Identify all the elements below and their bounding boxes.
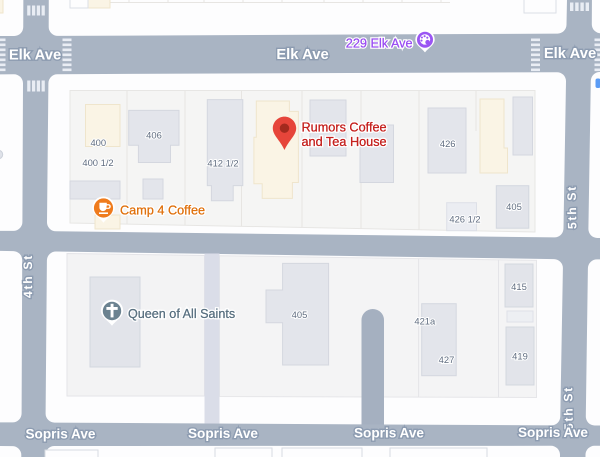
svg-text:Sopris Ave: Sopris Ave	[188, 426, 258, 441]
svg-text:400: 400	[90, 137, 106, 148]
svg-text:405: 405	[506, 201, 522, 212]
svg-text:Rumors Coffee: Rumors Coffee	[302, 121, 387, 135]
svg-text:5th St: 5th St	[561, 386, 576, 430]
svg-text:Sopris Ave: Sopris Ave	[518, 425, 588, 440]
svg-text:Sopris Ave: Sopris Ave	[354, 426, 424, 441]
svg-text:412 1/2: 412 1/2	[207, 158, 238, 169]
svg-text:405: 405	[292, 309, 308, 320]
svg-text:4th St: 4th St	[21, 254, 35, 298]
svg-text:5th St: 5th St	[565, 185, 580, 229]
svg-text:Sopris Ave: Sopris Ave	[25, 427, 95, 442]
svg-text:419: 419	[512, 351, 528, 362]
svg-text:400 1/2: 400 1/2	[82, 157, 113, 168]
svg-text:Camp 4 Coffee: Camp 4 Coffee	[120, 204, 205, 218]
svg-text:426 1/2: 426 1/2	[449, 214, 480, 225]
svg-text:Elk Ave: Elk Ave	[544, 46, 596, 62]
svg-text:406: 406	[146, 130, 162, 141]
svg-text:Queen of All Saints: Queen of All Saints	[128, 307, 235, 321]
svg-text:and Tea House: and Tea House	[302, 135, 387, 149]
svg-text:Elk Ave: Elk Ave	[276, 47, 328, 63]
svg-text:Elk Ave: Elk Ave	[9, 48, 61, 64]
svg-text:426: 426	[440, 138, 456, 149]
svg-text:427: 427	[439, 354, 455, 365]
svg-text:415: 415	[511, 281, 527, 292]
svg-text:421a: 421a	[414, 316, 436, 327]
svg-text:229 Elk Ave: 229 Elk Ave	[346, 37, 413, 51]
